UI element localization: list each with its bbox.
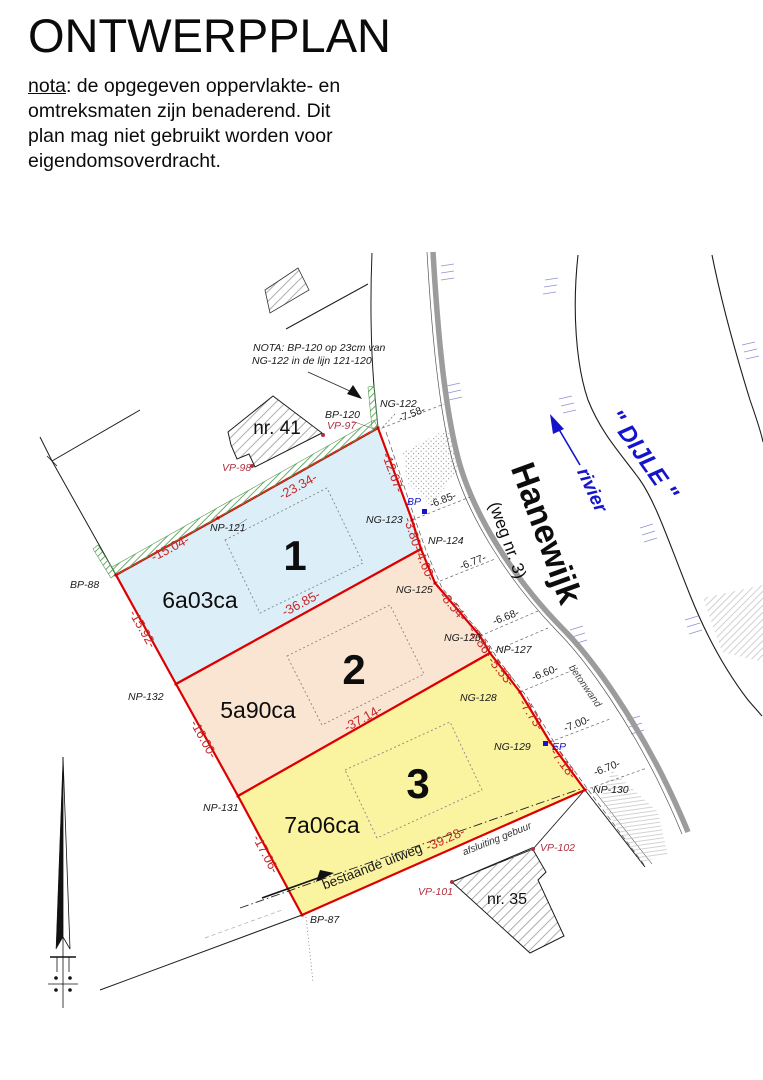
label-bp87: BP-87 bbox=[310, 914, 340, 926]
road-width-6.77: -6.77- bbox=[458, 552, 488, 573]
label-ng129: NG-129 bbox=[494, 741, 531, 753]
river-flow-arrow-shaft bbox=[557, 426, 580, 465]
nota-line2: omtreksmaten zijn benaderend. Dit bbox=[28, 100, 330, 122]
river-name: " DIJLE " bbox=[602, 405, 684, 506]
parcel-3-number: 3 bbox=[406, 760, 429, 807]
river-bank-right bbox=[712, 255, 763, 442]
parcel-2-number: 2 bbox=[342, 646, 365, 693]
boundary-tick bbox=[47, 456, 57, 466]
label-bp-utility: BP bbox=[407, 496, 421, 508]
river-type-label: rivier bbox=[572, 465, 611, 517]
label-building-nr41: nr. 41 bbox=[253, 418, 301, 439]
nota-leader-line bbox=[308, 372, 352, 392]
label-ng122: NG-122 bbox=[380, 398, 417, 410]
nota-line1: : de opgegeven oppervlakte- en bbox=[66, 75, 340, 97]
hatched-area-right-edge bbox=[703, 585, 763, 662]
label-np130: NP-130 bbox=[593, 784, 629, 796]
label-ng126: NG-126 bbox=[444, 632, 481, 644]
nota-line4: eigendomsoverdracht. bbox=[28, 150, 221, 172]
nota-arrow-head bbox=[347, 385, 362, 399]
label-np127: NP-127 bbox=[496, 644, 533, 656]
label-building-nr35: nr. 35 bbox=[487, 891, 527, 908]
label-np121: NP-121 bbox=[210, 522, 246, 534]
nota-label: nota bbox=[28, 75, 66, 97]
nota-line3: plan mag niet gebruikt worden voor bbox=[28, 125, 333, 147]
boundary-line-west-branch bbox=[52, 410, 140, 461]
parcel-1-area: 6a03ca bbox=[162, 587, 238, 613]
label-np124: NP-124 bbox=[428, 535, 464, 547]
hatched-area-top bbox=[265, 268, 309, 313]
dotted-guide-bp87 bbox=[306, 917, 313, 982]
label-vp102: VP-102 bbox=[540, 842, 575, 854]
road-width-6.60: -6.60- bbox=[530, 663, 560, 684]
ep-utility-marker bbox=[543, 741, 548, 746]
bp-utility-marker bbox=[422, 509, 427, 514]
label-bp88: BP-88 bbox=[70, 579, 99, 591]
boundary-line-south bbox=[100, 915, 302, 990]
gray-dashed-guide bbox=[205, 910, 282, 938]
parcel-3-area: 7a06ca bbox=[284, 812, 360, 838]
ng122-leader bbox=[381, 414, 395, 429]
parcel-1-number: 1 bbox=[283, 532, 306, 579]
label-vp101: VP-101 bbox=[418, 886, 453, 898]
label-vp97: VP-97 bbox=[327, 420, 357, 432]
plan-note-line2: NG-122 in de lijn 121-120 bbox=[252, 355, 372, 367]
river-flow-arrow-head bbox=[550, 414, 564, 434]
plan-header: ONTWERPPLAN nota: de opgegeven oppervlak… bbox=[28, 10, 428, 174]
label-ng128: NG-128 bbox=[460, 692, 497, 704]
label-ng123: NG-123 bbox=[366, 514, 403, 526]
label-np131: NP-131 bbox=[203, 802, 239, 814]
page-title: ONTWERPPLAN bbox=[28, 10, 428, 62]
survey-plan-page: { "header": { "title": "ONTWERPPLAN", "n… bbox=[0, 0, 763, 1080]
label-ep-utility: EP bbox=[552, 741, 566, 753]
label-np132: NP-132 bbox=[128, 691, 164, 703]
disclaimer-note: nota: de opgegeven oppervlakte- en omtre… bbox=[28, 74, 373, 174]
parcel-2-area: 5a90ca bbox=[220, 697, 296, 723]
plan-note-line1: NOTA: BP-120 op 23cm van bbox=[253, 342, 385, 354]
label-ng125: NG-125 bbox=[396, 584, 433, 596]
north-arrow bbox=[48, 757, 78, 1008]
boundary-line-west bbox=[40, 437, 116, 575]
label-vp98: VP-98 bbox=[222, 462, 251, 474]
